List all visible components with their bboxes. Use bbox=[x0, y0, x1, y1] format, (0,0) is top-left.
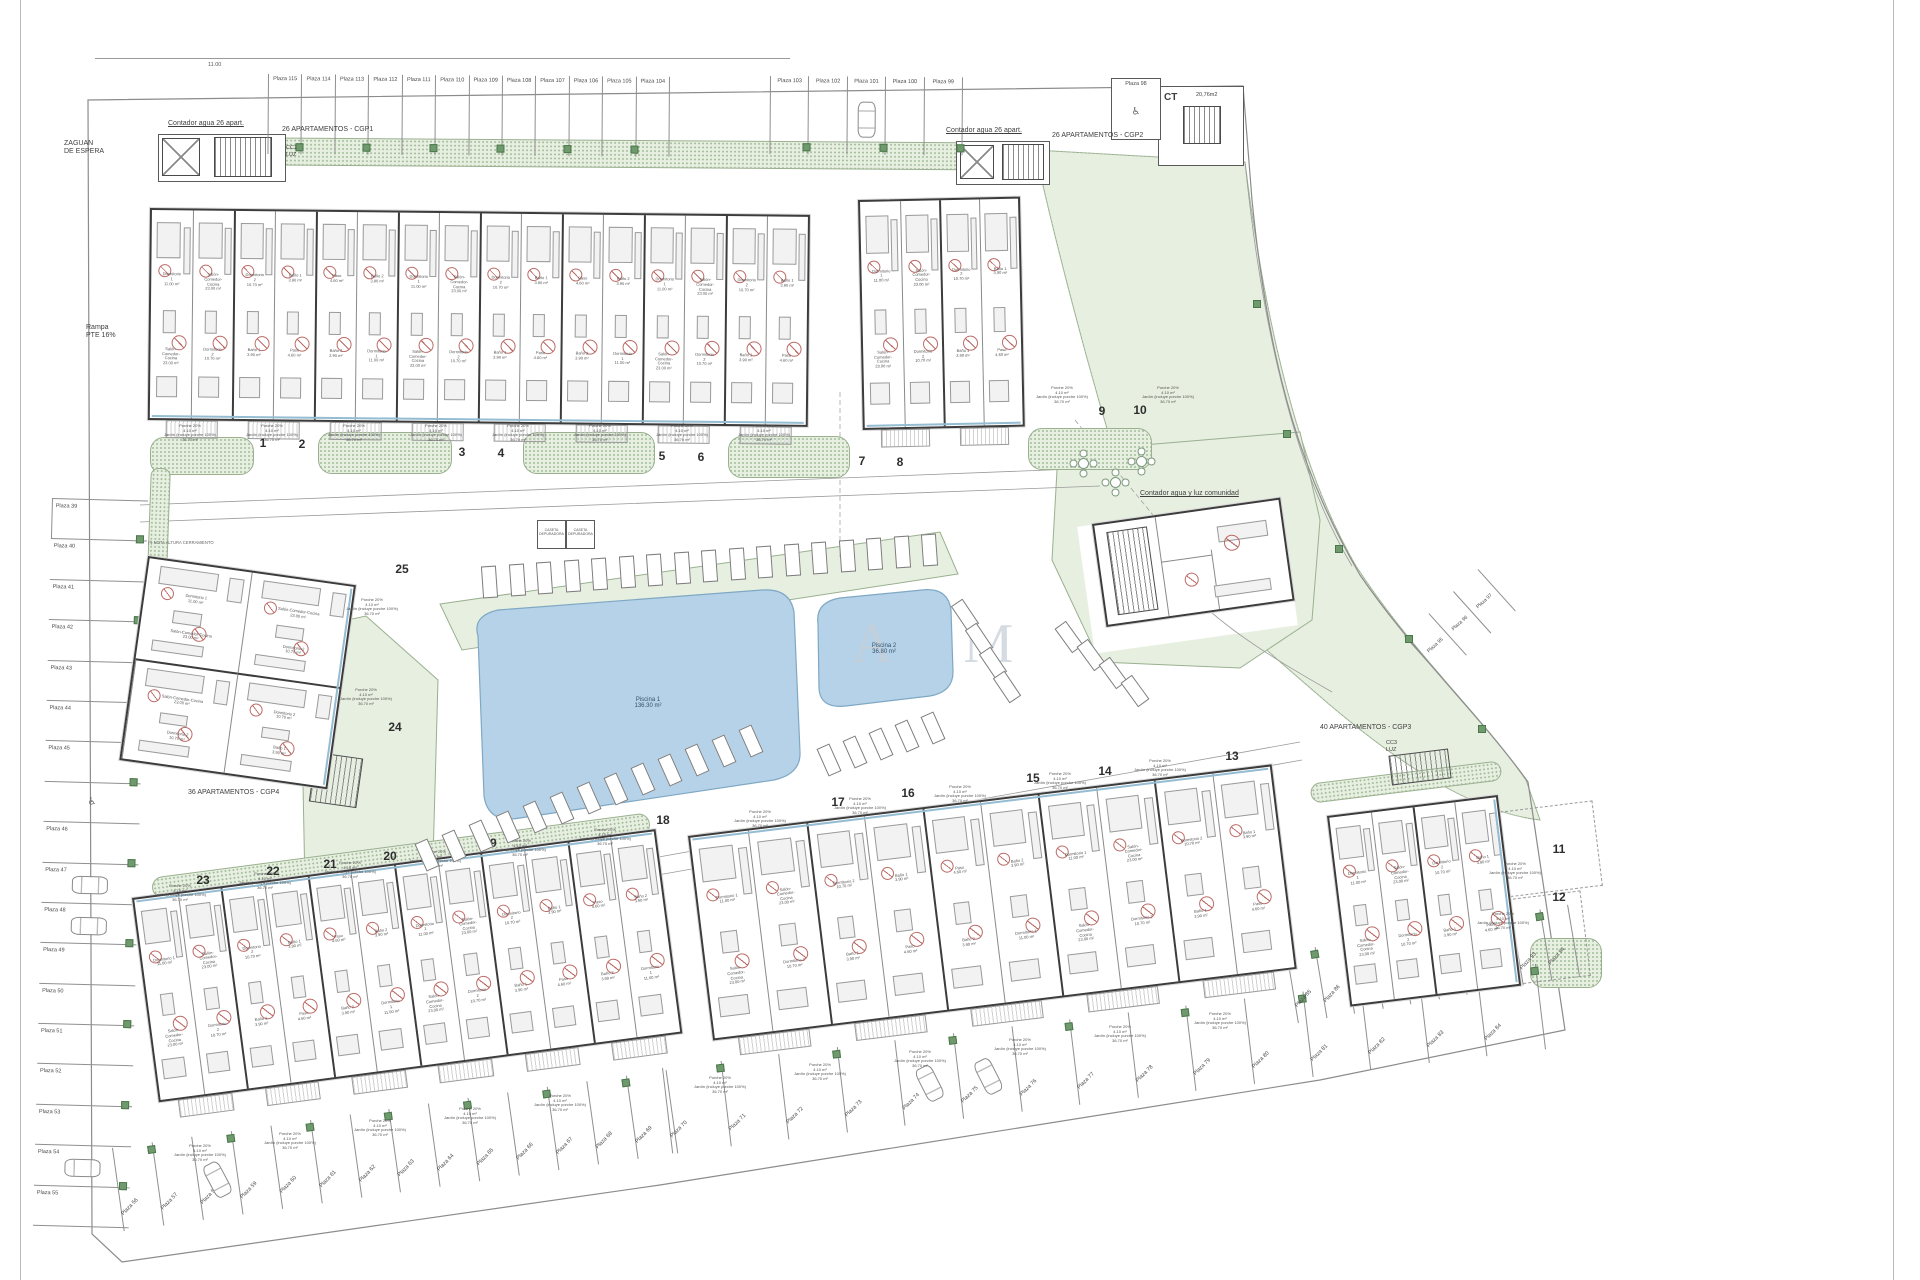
table-furniture bbox=[328, 312, 340, 335]
sofa-furniture bbox=[138, 740, 190, 758]
bed-furniture bbox=[1164, 788, 1201, 826]
room-label: Salón-Comedor-Cocina 23.00 m² bbox=[457, 916, 481, 937]
parking-stall: Plaza 108 bbox=[502, 76, 536, 156]
wardrobe-furniture bbox=[306, 228, 313, 276]
sofa-furniture bbox=[240, 754, 292, 772]
stall-label: Plaza 64 bbox=[437, 1153, 456, 1173]
garden-label: Porche 20% 4.10 m² Jardín (incluye porch… bbox=[346, 598, 398, 616]
room-label: Dormitorio 1 11.00 m² bbox=[655, 278, 675, 292]
parking-stall: Plaza 101 bbox=[847, 77, 886, 155]
apartment-unit: Baño 2 3.90 m²Dormitorio 1 11.00 m² bbox=[601, 215, 644, 423]
door-swing-icon bbox=[997, 851, 1011, 865]
stall-label: Plaza 48 bbox=[44, 907, 66, 914]
sofa-furniture bbox=[362, 379, 383, 400]
apartment-unit: Salón-Comedor-Cocina 23.00 m²Dormitorio … bbox=[683, 216, 726, 424]
room-label: Baño 2 3.90 m² bbox=[575, 352, 589, 361]
garden-table-icon bbox=[1078, 458, 1089, 469]
parking-stall-98: Plaza 98 ♿ bbox=[1111, 78, 1161, 140]
garden-label: Porche 20% 4.10 m² Jardín (incluye porch… bbox=[324, 861, 376, 879]
garden-label: Porche 20% 4.10 m² Jardín (incluye porch… bbox=[328, 424, 380, 442]
garden-label: Porche 20% 4.10 m² Jardín (incluye porch… bbox=[994, 1038, 1046, 1056]
stall-label: Plaza 78 bbox=[1135, 1064, 1154, 1083]
sofa-furniture bbox=[151, 639, 203, 657]
sofa-furniture bbox=[950, 381, 970, 404]
table-furniture bbox=[287, 311, 300, 334]
stall-label: Plaza 83 bbox=[1426, 1030, 1445, 1049]
room-label: Baño 2 3.90 m² bbox=[600, 971, 615, 982]
apartment-unit: Baño 1 3.90 m²Paso 4.60 m² bbox=[519, 214, 562, 422]
apartment-unit: Baño 1 3.90 m²Paso 4.60 m² bbox=[273, 211, 316, 419]
sofa-furniture bbox=[526, 380, 547, 401]
bed-furniture bbox=[526, 226, 550, 262]
bed-furniture bbox=[280, 224, 304, 260]
tree-icon bbox=[1253, 300, 1261, 308]
wardrobe-furniture bbox=[716, 233, 723, 281]
table-furniture bbox=[1395, 899, 1410, 921]
room-label: Salón-Comedor-Cocina 23.00 m² bbox=[1389, 865, 1412, 886]
car-icon bbox=[857, 102, 875, 138]
stall-label: Plaza 84 bbox=[1484, 1023, 1503, 1042]
bed-furniture bbox=[1462, 810, 1490, 845]
building-units: Dormitorio 1 11.00 m²Salón-Comedor-Cocin… bbox=[150, 210, 808, 425]
tree-icon bbox=[957, 144, 965, 152]
stall-label: Plaza 65 bbox=[476, 1147, 495, 1167]
room-label: Dormitorio 2 10.70 m² bbox=[241, 944, 263, 960]
stall-label: Plaza 98 bbox=[1125, 81, 1146, 87]
door-swing-icon bbox=[1228, 823, 1242, 837]
wardrobe-furniture bbox=[646, 848, 659, 895]
stall-label: Plaza 75 bbox=[960, 1085, 979, 1104]
room-label: Dormitorio 1 11.00 m² bbox=[366, 350, 386, 364]
wardrobe-furniture bbox=[891, 219, 899, 271]
table-furniture bbox=[163, 310, 176, 333]
room-label: Baño 1 3.90 m² bbox=[287, 939, 302, 950]
stall-label: Plaza 81 bbox=[1309, 1043, 1328, 1062]
wardrobe-furniture bbox=[1009, 217, 1017, 269]
sofa-furniture bbox=[1183, 936, 1214, 960]
room-label: Baño 1 3.90 m² bbox=[534, 276, 548, 285]
bed-furniture bbox=[532, 856, 562, 893]
meter-bank bbox=[1106, 526, 1158, 615]
table-furniture bbox=[451, 313, 464, 336]
sun-lounger bbox=[866, 538, 883, 571]
bed-furniture bbox=[1048, 802, 1085, 840]
parking-stall: Plaza 112 bbox=[369, 75, 403, 155]
apartment-unit: Dormitorio 1 11.00 m²Salón-Comedor-Cocin… bbox=[642, 215, 685, 423]
room-label: Dormitorio 2 10.70 m² bbox=[206, 1022, 229, 1038]
parking-stall: Plaza 102 bbox=[809, 76, 848, 154]
garden-label: Porche 20% 4.10 m² Jardín (incluye porch… bbox=[738, 424, 790, 442]
bed-furniture bbox=[932, 816, 969, 854]
dimension-label: 11.00 bbox=[208, 62, 221, 68]
garden-label: Porche 20% 4.10 m² Jardín (incluye porch… bbox=[574, 424, 626, 442]
room-label: Baño 1 3.90 m² bbox=[272, 746, 287, 757]
table-furniture bbox=[1242, 866, 1261, 890]
bed-furniture bbox=[362, 225, 386, 261]
room-label: Dormitorio 2 10.70 m² bbox=[952, 267, 971, 281]
stall-label: Plaza 70 bbox=[669, 1120, 688, 1139]
door-swing-icon bbox=[249, 702, 264, 717]
parking-stall: Plaza 115 bbox=[267, 74, 302, 154]
wardrobe-furniture bbox=[634, 232, 641, 280]
sofa-furniture bbox=[1241, 929, 1273, 953]
bed-furniture bbox=[272, 891, 302, 928]
room-label: Paso 4.60 m² bbox=[330, 274, 344, 283]
sun-lounger bbox=[481, 566, 498, 599]
parking-stall: Plaza 100 bbox=[886, 77, 925, 155]
sofa-furniture bbox=[156, 377, 178, 398]
sun-lounger bbox=[591, 558, 608, 591]
table-furniture bbox=[160, 992, 176, 1016]
room-label: Paso 4.60 m² bbox=[903, 944, 918, 955]
unit-number-label: 4 bbox=[498, 446, 505, 460]
table-furniture bbox=[874, 310, 887, 335]
unit-number-label: 3 bbox=[459, 445, 466, 459]
room-label: Salón-Comedor-Cocina 23.00 m² bbox=[1070, 922, 1100, 944]
garden-label: Porche 20% 4.10 m² Jardín (incluye porch… bbox=[354, 1119, 406, 1137]
room-label: Paso 4.60 m² bbox=[953, 865, 968, 876]
stall-label: Plaza 51 bbox=[41, 1028, 63, 1035]
wardrobe-furniture bbox=[757, 233, 764, 281]
room-label: Salón-Comedor-Cocina 23.00 m² bbox=[161, 694, 204, 709]
table-furniture bbox=[779, 316, 792, 339]
room-label: Dormitorio 2 10.70 m² bbox=[694, 353, 714, 367]
room-label: Paso 4.60 m² bbox=[591, 899, 606, 910]
stall-label: Plaza 100 bbox=[893, 79, 918, 85]
stall-label: Plaza 40 bbox=[54, 543, 76, 550]
unit-number-label: 16 bbox=[901, 786, 914, 800]
apartment-unit: Paso 4.60 m²Baño 2 3.90 m² bbox=[314, 212, 357, 420]
apartment-unit: Dormitorio 2 10.70 m²Baño 1 3.90 m² bbox=[724, 216, 767, 424]
garden-label: Porche 20% 4.10 m² Jardín (incluye porch… bbox=[1489, 862, 1541, 880]
parking-stall: Plaza 110 bbox=[436, 75, 470, 155]
bed-furniture bbox=[185, 902, 215, 939]
bed-furniture bbox=[445, 868, 475, 905]
garden-label: Porche 20% 4.10 m² Jardín (incluye porch… bbox=[164, 424, 216, 442]
ct-transformer bbox=[1183, 106, 1221, 144]
garden-label: Porche 20% 4.10 m² Jardín (incluye porch… bbox=[834, 797, 886, 815]
apartment-unit: Dormitorio 1 11.00 m²Salón-Comedor-Cocin… bbox=[396, 213, 439, 421]
table-furniture bbox=[246, 311, 258, 334]
apartment-unit: Salón-Comedor-Cocina 23.00 m²Dormitorio … bbox=[238, 573, 354, 687]
sofa-furniture bbox=[952, 965, 983, 989]
unit-number-label: 24 bbox=[388, 720, 401, 734]
table-furniture bbox=[615, 315, 628, 338]
room-label: Dormitorio 1 11.00 m² bbox=[380, 999, 403, 1015]
stairs-icon bbox=[214, 137, 272, 177]
sofa-furniture bbox=[596, 999, 620, 1022]
parking-stall: Plaza 109 bbox=[469, 75, 503, 155]
stall-label: Plaza 61 bbox=[318, 1170, 337, 1190]
wardrobe-furniture bbox=[388, 229, 395, 277]
parking-row-left: Plaza 39Plaza 40Plaza 41Plaza 42Plaza 43… bbox=[33, 498, 148, 1228]
stall-label: Plaza 42 bbox=[52, 624, 74, 631]
stall-label: Plaza 106 bbox=[574, 78, 599, 84]
room-label: Baño 2 3.90 m² bbox=[1010, 858, 1025, 869]
parking-stall: Plaza 55 bbox=[33, 1185, 130, 1228]
parking-stall: Plaza 113 bbox=[335, 74, 369, 154]
stall-label: Plaza 59 bbox=[239, 1181, 258, 1201]
tree-icon bbox=[1405, 635, 1413, 643]
table-furniture bbox=[508, 947, 524, 971]
parking-stall: ♿ bbox=[44, 782, 141, 825]
parking-row-top_b: Plaza 103Plaza 102Plaza 101Plaza 100Plaz… bbox=[769, 76, 963, 155]
stall-label: Plaza 99 bbox=[933, 79, 954, 85]
garden-label: Porche 20% 4.10 m² Jardín (incluye porch… bbox=[1036, 386, 1088, 404]
sun-lounger bbox=[618, 556, 635, 589]
tree-icon bbox=[1335, 545, 1343, 553]
apartment-unit: Paso 4.60 m²Baño 2 3.90 m² bbox=[560, 214, 603, 422]
table-furniture bbox=[205, 310, 218, 333]
sofa-furniture bbox=[1479, 948, 1503, 969]
apartment-unit: Dormitorio 1 11.00 m²Salón-Comedor-Cocin… bbox=[136, 558, 252, 672]
stall-label: Plaza 49 bbox=[43, 947, 65, 954]
stall-label: Plaza 76 bbox=[1018, 1078, 1037, 1097]
car-icon bbox=[64, 1158, 100, 1177]
room-label: Salón-Comedor-Cocina 23.00 m² bbox=[912, 268, 932, 287]
garden-label: Porche 20% 4.10 m² Jardín (incluye porch… bbox=[492, 424, 544, 442]
stall-label: Plaza 71 bbox=[727, 1113, 746, 1132]
stall-label: Plaza 66 bbox=[516, 1142, 535, 1162]
stall-label: Plaza 96 bbox=[1451, 615, 1469, 632]
room-label: Baño 1 3.90 m² bbox=[993, 267, 1007, 276]
bed-furniture bbox=[403, 873, 432, 910]
annotation-nota: (*) NOTA ALTURA CERRAMIENTO bbox=[148, 540, 214, 545]
garden-label: Porche 20% 4.10 m² Jardín (incluye porch… bbox=[154, 884, 206, 902]
sofa-furniture bbox=[465, 1016, 490, 1039]
parking-stall: Plaza 53 bbox=[35, 1105, 132, 1148]
sun-lounger bbox=[508, 564, 525, 597]
bed-furniture bbox=[757, 838, 794, 876]
parking-stall: Plaza 111 bbox=[402, 75, 436, 155]
annotation-zaguan: ZAGUAN DE ESPERA bbox=[64, 140, 104, 157]
parking-stall: Plaza 105 bbox=[603, 76, 637, 156]
walkway-upper bbox=[140, 468, 1100, 522]
table-furniture bbox=[421, 958, 437, 982]
room-label: Paso 4.60 m² bbox=[1251, 902, 1266, 913]
garden-label: Porche 20% 4.10 m² Jardín (incluye porch… bbox=[1094, 1025, 1146, 1043]
parking-stall: Plaza 104 bbox=[636, 77, 670, 157]
bed-furniture bbox=[444, 226, 468, 262]
room-label: Salón-Comedor-Cocina 23.00 m² bbox=[721, 965, 752, 987]
stall-label: Plaza 115 bbox=[273, 76, 297, 82]
room-label: Dormitorio 1 11.00 m² bbox=[153, 956, 176, 968]
table-furniture bbox=[719, 930, 739, 954]
sofa-furniture bbox=[869, 382, 890, 405]
parking-stall: Plaza 50 bbox=[38, 984, 135, 1027]
table-furniture bbox=[533, 314, 546, 337]
sofa-furniture bbox=[893, 972, 925, 996]
parking-stall: Plaza 48 bbox=[40, 903, 137, 946]
table-furniture bbox=[656, 315, 668, 338]
stall-label: Plaza 63 bbox=[397, 1158, 416, 1178]
wardrobe-furniture bbox=[183, 227, 190, 275]
annotation-contador_26_mid: Contador agua 26 apart. bbox=[946, 127, 1022, 135]
garden-label: Porche 20% 4.10 m² Jardín (incluye porch… bbox=[174, 1144, 226, 1162]
bench-furniture bbox=[1213, 578, 1272, 598]
building-b6: Dormitorio 1 11.00 m²Salón-Comedor-Cocin… bbox=[1327, 795, 1521, 1007]
bed-furniture bbox=[732, 229, 756, 265]
garden-label: Porche 20% 4.10 m² Jardín (incluye porch… bbox=[1034, 772, 1086, 790]
tree-icon bbox=[1283, 430, 1291, 438]
unit-number-label: 6 bbox=[698, 450, 705, 464]
building-b2: Dormitorio 1 11.00 m²Salón-Comedor-Cocin… bbox=[858, 197, 1025, 430]
apartment-unit: Baño 1 3.90 m²Paso 4.60 m² bbox=[979, 199, 1023, 426]
annotation-cgp3: 40 APARTAMENTOS - CGP3 bbox=[1320, 724, 1411, 732]
building-units: Dormitorio 1 11.00 m²Salón-Comedor-Cocin… bbox=[860, 199, 1023, 428]
bed-furniture bbox=[989, 809, 1026, 847]
sofa-furniture bbox=[423, 1022, 447, 1045]
stall-label: Plaza 114 bbox=[307, 76, 331, 82]
apartment-unit: Dormitorio 1 11.00 m²Salón-Comedor-Cocin… bbox=[860, 201, 904, 428]
garden-label: Porche 20% 4.10 m² Jardín (incluye porch… bbox=[1134, 759, 1186, 777]
stall-label: Plaza 107 bbox=[540, 78, 565, 84]
bed-furniture bbox=[699, 845, 737, 883]
wardrobe-furniture bbox=[470, 230, 477, 278]
sofa-furniture bbox=[485, 380, 506, 401]
garden-label: Porche 20% 4.10 m² Jardín (incluye porch… bbox=[656, 424, 708, 442]
bed-furniture bbox=[946, 213, 969, 252]
stall-label: Plaza 56 bbox=[120, 1197, 139, 1217]
table-furniture bbox=[275, 625, 305, 641]
sofa-furniture bbox=[292, 1039, 317, 1062]
garden-label: Porche 20% 4.10 m² Jardín (incluye porch… bbox=[734, 810, 786, 828]
sun-lounger bbox=[783, 544, 800, 577]
room-label: Salón-Comedor-Cocina 23.00 m² bbox=[408, 350, 428, 369]
handicap-icon: ♿ bbox=[1132, 107, 1141, 118]
sofa-furniture bbox=[254, 654, 306, 672]
room-label: Baño 2 3.90 m² bbox=[370, 275, 384, 284]
stall-label: Plaza 101 bbox=[854, 79, 879, 85]
stall-label: Plaza 57 bbox=[160, 1192, 179, 1212]
unit-number-label: 11 bbox=[1553, 842, 1566, 856]
bed-furniture bbox=[1105, 795, 1142, 833]
garden-plot-11 bbox=[1495, 800, 1603, 897]
apartment-unit: Dormitorio 1 11.00 m²Salón-Comedor-Cocin… bbox=[150, 210, 193, 418]
tree-icon bbox=[1478, 725, 1486, 733]
room-label: Baño 2 3.90 m² bbox=[634, 893, 649, 904]
wardrobe-furniture bbox=[315, 694, 332, 720]
stall-label: Plaza 110 bbox=[440, 77, 464, 83]
bed-furniture bbox=[1378, 820, 1406, 855]
handicap-icon: ♿ bbox=[87, 797, 96, 808]
parking-stall: Plaza 71 bbox=[721, 1054, 789, 1146]
stall-label: Plaza 95 bbox=[1426, 637, 1444, 654]
wardrobe-furniture bbox=[552, 231, 559, 279]
room-label: Dormitorio 2 10.70 m² bbox=[1131, 915, 1154, 927]
stall-label: Plaza 72 bbox=[786, 1106, 805, 1125]
stall-label: Plaza 93 bbox=[1519, 951, 1538, 971]
bed-furniture bbox=[576, 851, 605, 888]
room-label: Dormitorio 2 10.70 m² bbox=[448, 350, 468, 364]
room-label: Dormitorio 1 11.00 m² bbox=[612, 352, 632, 366]
table-furniture bbox=[260, 726, 290, 742]
sofa-furniture bbox=[198, 377, 219, 398]
bed-furniture bbox=[568, 227, 592, 263]
sofa-furniture bbox=[336, 1033, 360, 1056]
unit-number-label: 25 bbox=[395, 562, 408, 576]
bed-furniture bbox=[772, 229, 796, 265]
sofa-furniture bbox=[1438, 953, 1461, 974]
garden-label: Porche 20% 4.10 m² Jardín (incluye porch… bbox=[246, 424, 298, 442]
table-furniture bbox=[955, 308, 967, 333]
room-label: Dormitorio 2 10.70 m² bbox=[166, 731, 189, 743]
stall-label: Plaza 109 bbox=[473, 77, 498, 83]
elevator-icon bbox=[162, 138, 200, 176]
room-label: Paso 4.60 m² bbox=[331, 933, 346, 944]
room-label: Salón-Comedor-Cocina 23.00 m² bbox=[654, 353, 674, 372]
bed-furniture bbox=[1336, 825, 1365, 860]
annotation-cgp1: 26 APARTAMENTOS - CGP1 bbox=[282, 126, 373, 134]
stall-label: Plaza 73 bbox=[844, 1099, 863, 1118]
stall-label: Plaza 50 bbox=[42, 988, 64, 995]
bed-furniture bbox=[240, 223, 264, 259]
table-furniture bbox=[637, 930, 653, 954]
room-label: Paso 4.60 m² bbox=[534, 351, 548, 360]
garden-label: Porche 20% 4.10 m² Jardín (incluye porch… bbox=[694, 1076, 746, 1094]
parking-stall: Plaza 52 bbox=[36, 1064, 133, 1107]
bed-furniture bbox=[404, 225, 428, 261]
bed-furniture bbox=[1221, 781, 1258, 819]
apartment-unit: Salón-Comedor-Cocina 23.00 m²Dormitorio … bbox=[900, 200, 944, 427]
stall-label: Plaza 44 bbox=[49, 705, 71, 712]
bed-furniture bbox=[690, 228, 714, 264]
table-furniture bbox=[778, 923, 797, 947]
stall-label: Plaza 77 bbox=[1077, 1071, 1096, 1090]
garden-label: Porche 20% 4.10 m² Jardín (incluye porch… bbox=[410, 424, 462, 442]
unit-number-label: 10 bbox=[1133, 403, 1146, 417]
room-label: Paso 4.60 m² bbox=[780, 354, 794, 363]
sofa-furniture bbox=[403, 379, 424, 400]
parking-stall: Plaza 99 bbox=[924, 77, 963, 155]
sofa-furniture bbox=[1396, 958, 1420, 979]
room-label: Dormitorio 2 10.70 m² bbox=[245, 273, 265, 287]
stall-label: Plaza 46 bbox=[46, 826, 68, 833]
building-units: Dormitorio 1 11.00 m²Salón-Comedor-Cocin… bbox=[1329, 797, 1519, 1004]
garden-label: Porche 20% 4.10 m² Jardín (incluye porch… bbox=[1142, 386, 1194, 404]
table-furniture bbox=[550, 941, 566, 965]
parking-stall: Plaza 114 bbox=[302, 74, 336, 154]
room-label: Paso 4.60 m² bbox=[557, 977, 572, 988]
room-label: Salón-Comedor-Cocina 23.00 m² bbox=[1119, 843, 1150, 865]
parking-stall: Plaza 103 bbox=[769, 76, 809, 154]
sofa-furniture bbox=[1068, 951, 1099, 975]
room-label: Dormitorio 2 10.70 m² bbox=[1180, 836, 1203, 848]
table-furniture bbox=[290, 975, 306, 999]
garden-label: Porche 20% 4.10 m² Jardín (incluye porch… bbox=[444, 1107, 496, 1125]
sofa-furniture bbox=[777, 986, 809, 1010]
ct-area-label: 20,76m2 bbox=[1196, 92, 1217, 99]
room-label: Baño 1 3.90 m² bbox=[1443, 927, 1458, 938]
room-label: Dormitorio 1 11.00 m² bbox=[409, 275, 429, 289]
table-furniture bbox=[953, 901, 972, 925]
sofa-furniture bbox=[731, 383, 752, 404]
room-label: Dormitorio 2 10.70 m² bbox=[501, 910, 523, 926]
room-label: Dormitorio 2 10.70 m² bbox=[833, 879, 856, 891]
stall-label: Plaza 108 bbox=[507, 78, 532, 84]
garden-label: Porche 20% 4.10 m² Jardín (incluye porch… bbox=[494, 839, 546, 857]
sofa-furniture bbox=[989, 380, 1010, 403]
room-label: Baño 1 3.90 m² bbox=[956, 349, 970, 358]
room-label: Dormitorio 1 11.00 m² bbox=[639, 965, 662, 981]
garden-label: Porche 20% 4.10 m² Jardín (incluye porch… bbox=[239, 872, 291, 890]
wardrobe-furniture bbox=[675, 232, 682, 280]
room-label: Dormitorio 1 11.00 m² bbox=[414, 921, 436, 937]
parking-stall: Plaza 39 bbox=[51, 498, 148, 542]
room-label: Salón-Comedor-Cocina 23.00 m² bbox=[424, 993, 447, 1014]
sun-lounger bbox=[893, 536, 910, 569]
parking-stall: Plaza 42 bbox=[48, 620, 145, 663]
